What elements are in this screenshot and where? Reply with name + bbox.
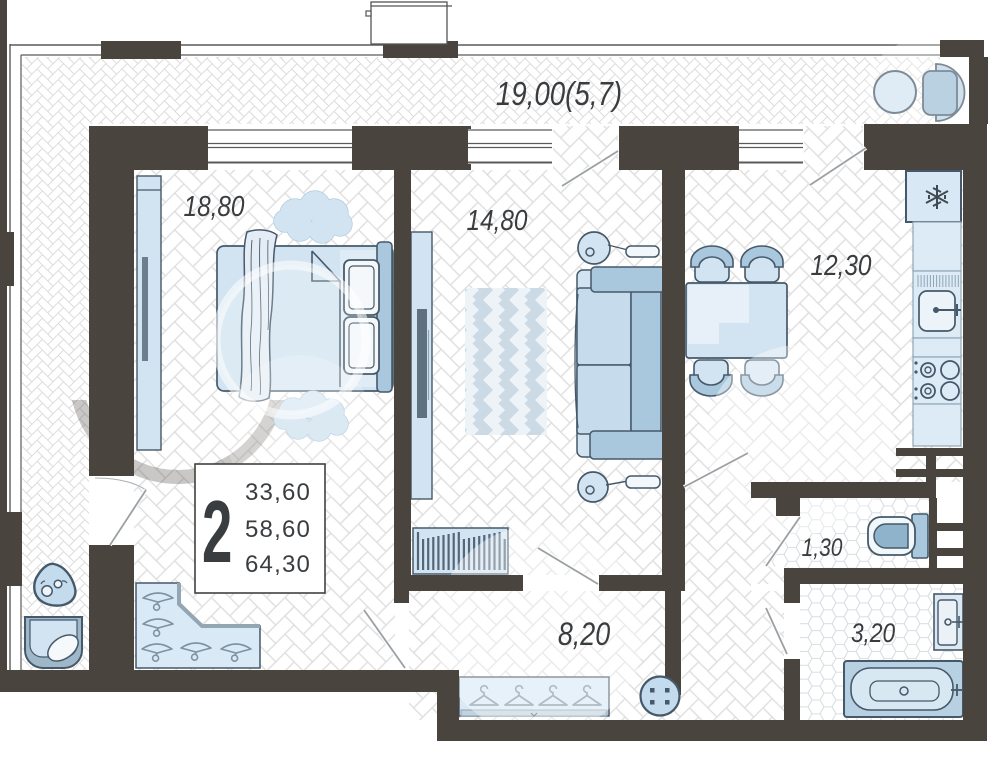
svg-text:14,80: 14,80 <box>467 204 528 236</box>
svg-text:64,30: 64,30 <box>245 551 311 578</box>
svg-text:12,30: 12,30 <box>811 249 872 281</box>
svg-text:58,60: 58,60 <box>245 516 311 543</box>
svg-text:8,20: 8,20 <box>558 617 611 653</box>
svg-text:2: 2 <box>202 483 232 582</box>
svg-text:33,60: 33,60 <box>245 479 311 506</box>
svg-text:18,80: 18,80 <box>184 190 245 222</box>
svg-text:3,20: 3,20 <box>851 618 895 648</box>
svg-text:19,00(5,7): 19,00(5,7) <box>496 76 622 113</box>
svg-text:1,30: 1,30 <box>802 533 843 561</box>
